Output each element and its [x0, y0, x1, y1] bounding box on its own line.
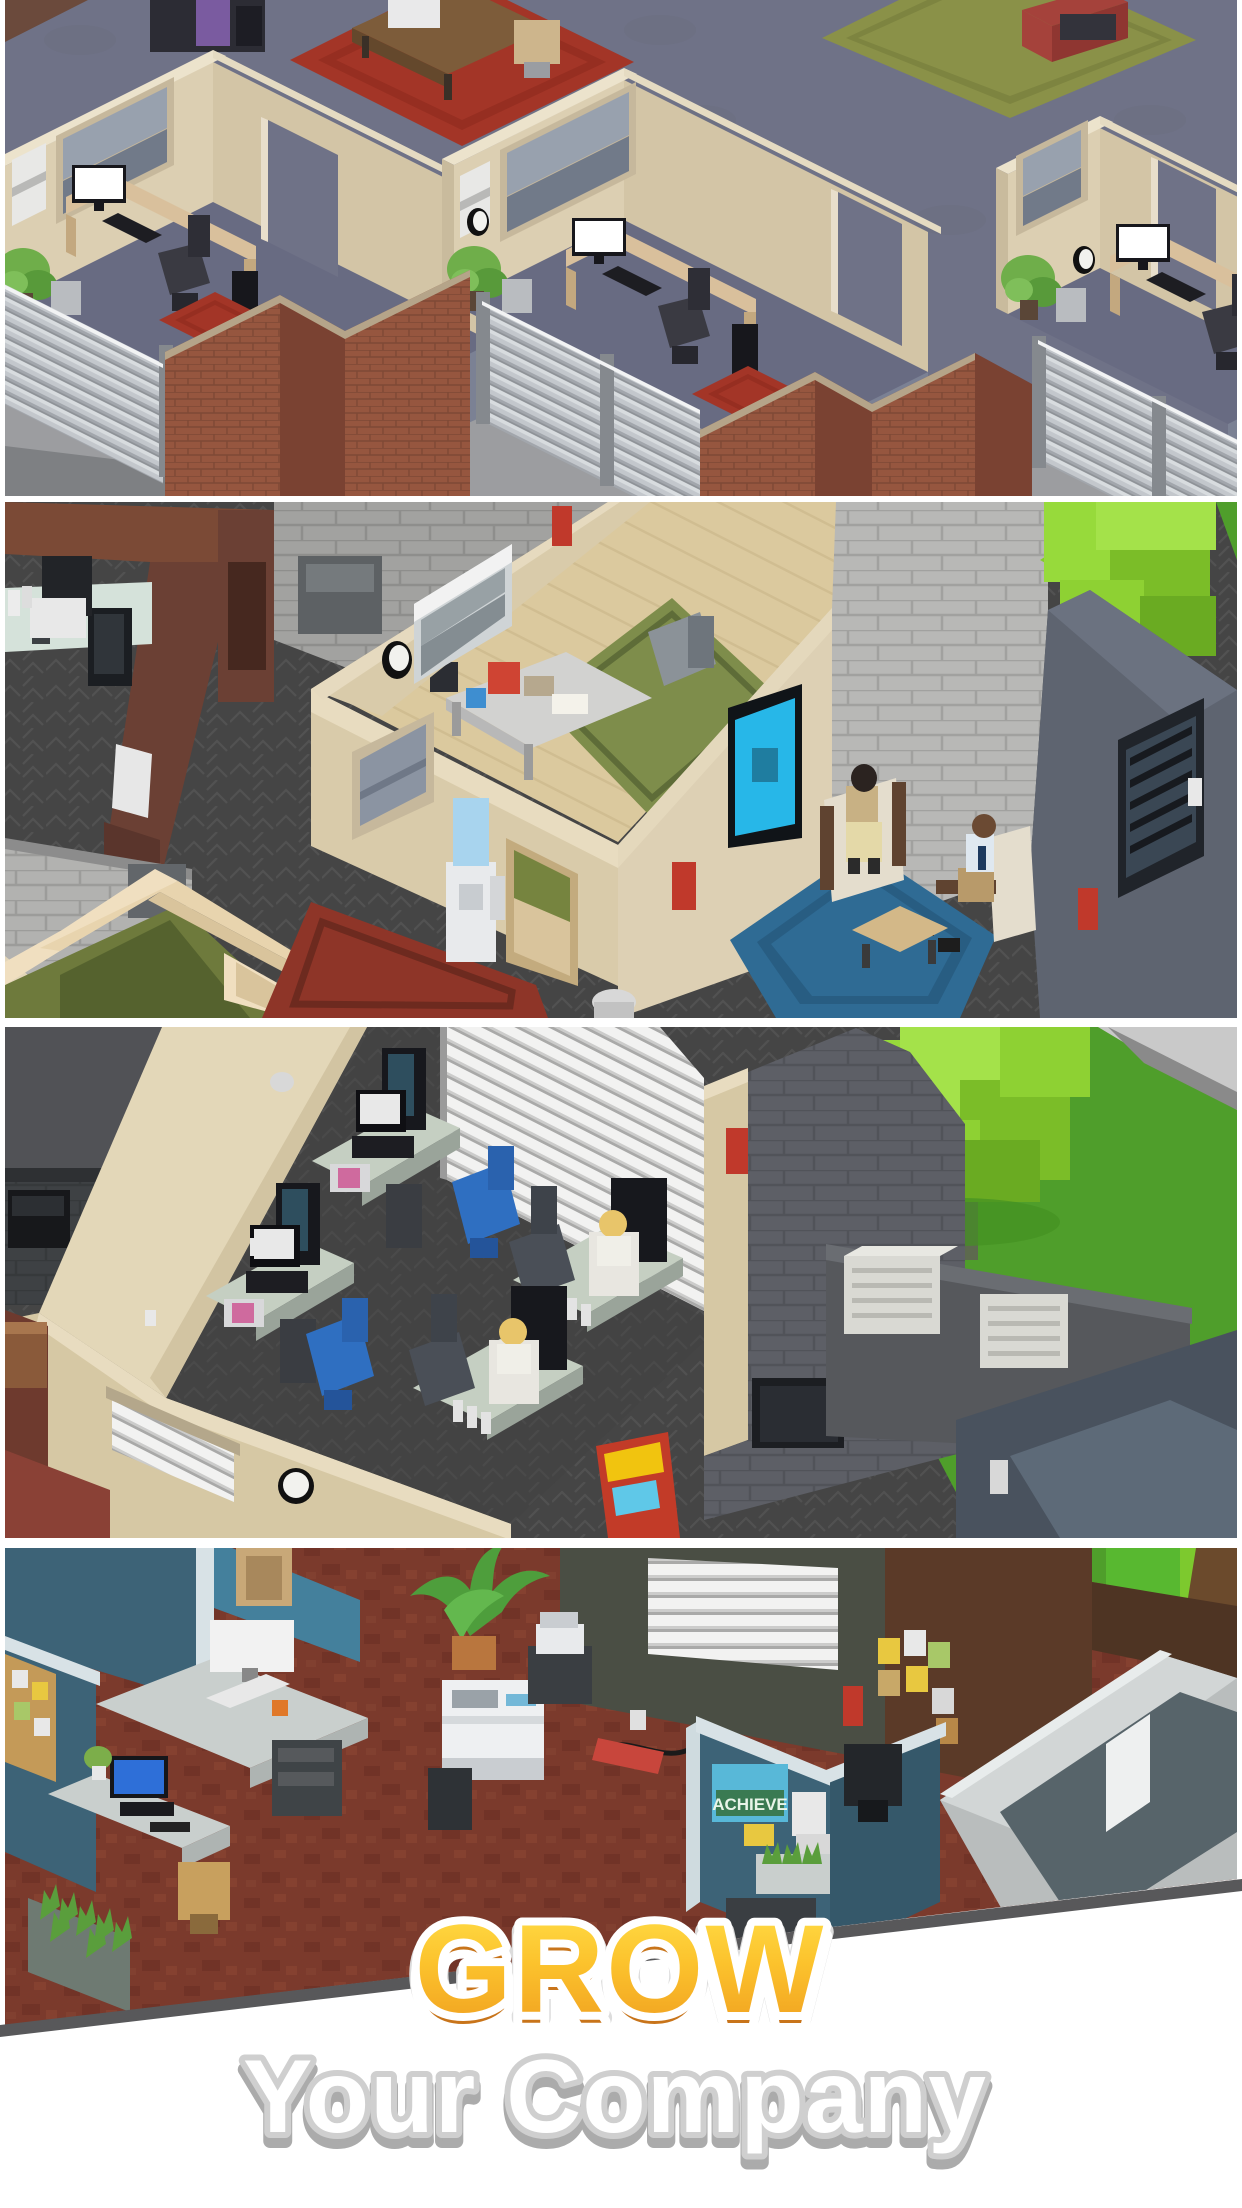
svg-text:ACHIEVE: ACHIEVE — [712, 1795, 788, 1814]
svg-text:GROW: GROW — [415, 1900, 826, 2039]
svg-text:Your Company: Your Company — [243, 2039, 987, 2155]
